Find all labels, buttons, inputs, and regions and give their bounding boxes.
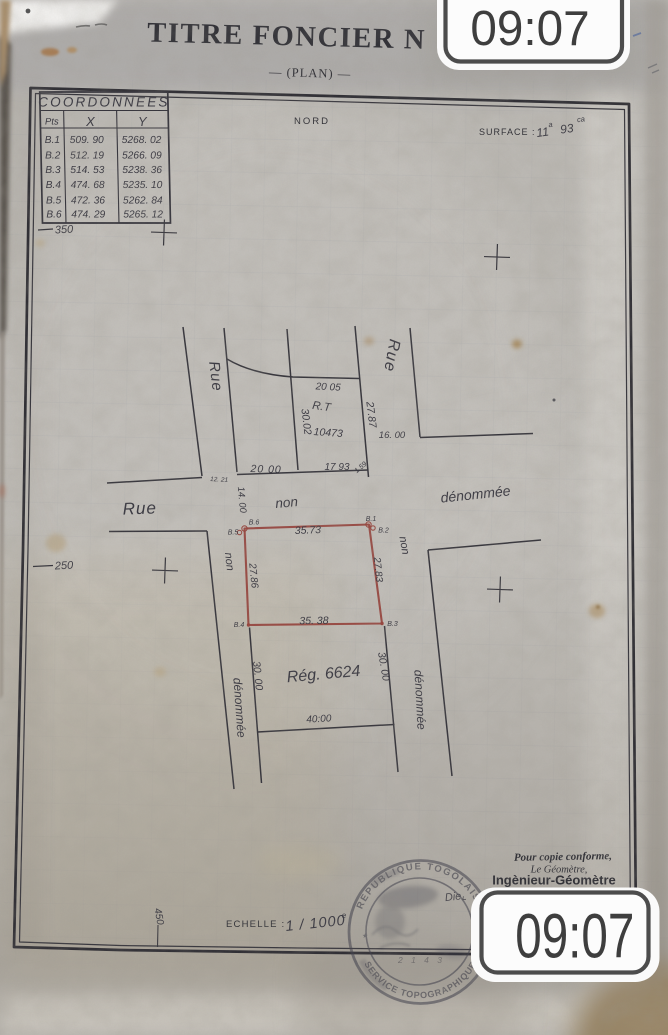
svg-text:09:07: 09:07 [515, 900, 634, 971]
svg-text:09:07: 09:07 [470, 1, 589, 56]
